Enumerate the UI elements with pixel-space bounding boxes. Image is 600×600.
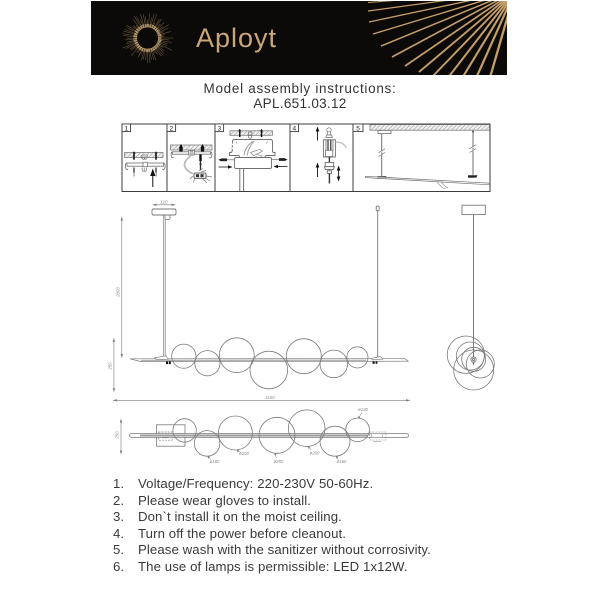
svg-text:1: 1 (124, 126, 128, 133)
svg-text:5: 5 (356, 126, 360, 133)
svg-text:4: 4 (292, 126, 296, 133)
svg-text:250: 250 (115, 431, 120, 440)
svg-text:2000: 2000 (116, 287, 121, 298)
svg-text:ø200: ø200 (310, 451, 320, 456)
svg-text:ø200: ø200 (239, 451, 249, 456)
svg-text:2: 2 (169, 126, 173, 133)
svg-text:ø160: ø160 (337, 459, 347, 464)
svg-text:ø160: ø160 (210, 459, 220, 464)
svg-text:ø130: ø130 (358, 407, 368, 412)
svg-text:1150: 1150 (265, 395, 275, 400)
svg-text:ø250: ø250 (274, 459, 284, 464)
svg-text:120: 120 (160, 200, 168, 205)
svg-text:3: 3 (217, 126, 221, 133)
svg-text:250: 250 (108, 362, 113, 371)
